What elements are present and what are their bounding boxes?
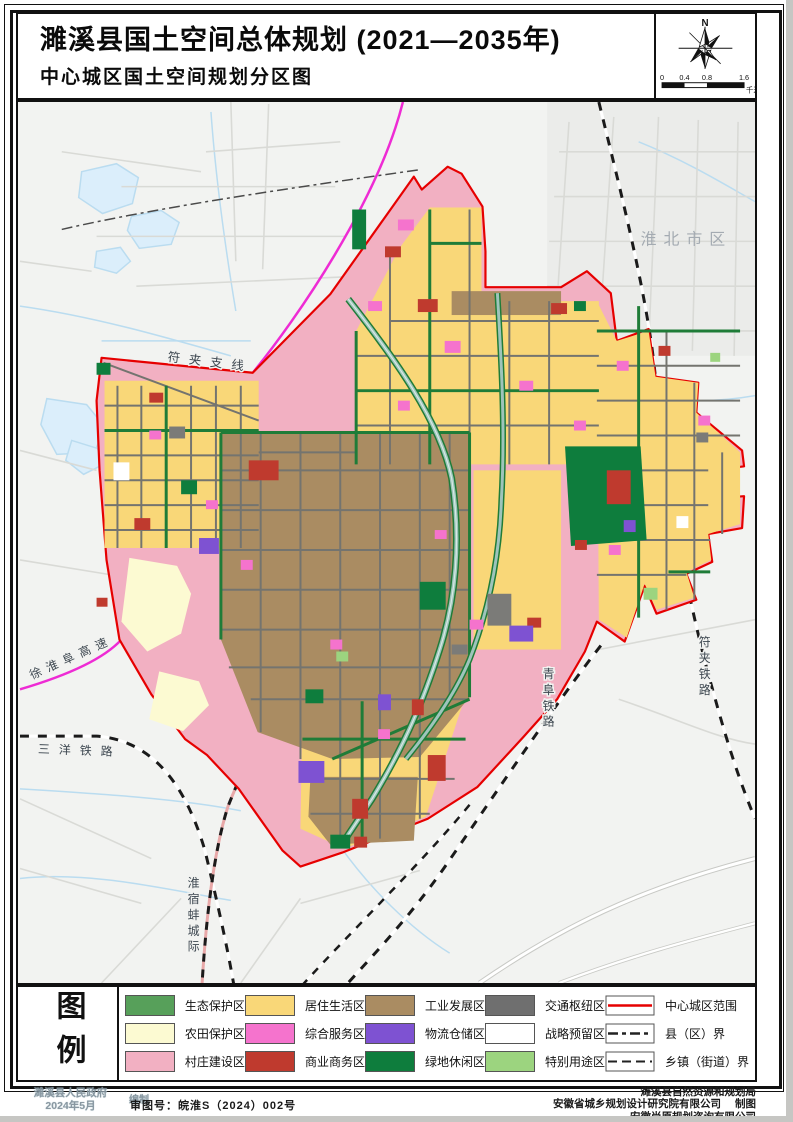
title-cell: 濉溪县国土空间总体规划 (2021—2035年) 中心城区国土空间规划分区图 xyxy=(18,14,654,98)
government-stamp: 濉溪县人民政府 2024年5月 编制 xyxy=(8,1087,133,1112)
special-swatch xyxy=(485,1051,535,1072)
legend-item-logistics: 物流仓储区 xyxy=(365,1021,485,1045)
legend-item-eco: 生态保护区 xyxy=(125,993,245,1017)
stamp-line1: 濉溪县人民政府 xyxy=(8,1087,133,1100)
legend-item-industry: 工业发展区 xyxy=(365,993,485,1017)
title-block: 濉溪县国土空间总体规划 (2021—2035年) 中心城区国土空间规划分区图 N xyxy=(16,12,757,100)
legend: 图例 生态保护区 农田保护区 村庄建设区 居住生活区 综合服务区 商业商务区 工… xyxy=(16,985,757,1082)
residential-swatch xyxy=(245,995,295,1016)
dashdot-line-symbol xyxy=(605,1023,655,1044)
farmland-swatch xyxy=(125,1023,175,1044)
stamp-line2: 2024年5月 xyxy=(8,1100,133,1113)
legend-item-village: 村庄建设区 xyxy=(125,1050,245,1074)
commercial-swatch xyxy=(245,1051,295,1072)
greenland-swatch xyxy=(365,1051,415,1072)
sanyang-railway-label: 三洋铁路 xyxy=(38,741,122,759)
page-subtitle: 中心城区国土空间规划分区图 xyxy=(40,62,644,89)
dash-line-symbol xyxy=(605,1051,655,1072)
fujia-railway-label: 符夹铁路 xyxy=(697,634,711,699)
qingfu-railway-label: 青阜铁路 xyxy=(541,667,555,731)
legend-item-residential: 居住生活区 xyxy=(245,993,365,1017)
industry-swatch xyxy=(365,995,415,1016)
logistics-swatch xyxy=(365,1023,415,1044)
legend-item-hub: 交通枢纽区 xyxy=(485,993,605,1017)
legend-item-strategic: 战略预留区 xyxy=(485,1021,605,1045)
legend-grid: 生态保护区 农田保护区 村庄建设区 居住生活区 综合服务区 商业商务区 工业发展… xyxy=(119,987,755,1080)
page-edge-bottom xyxy=(0,1116,793,1122)
compass-rose-icon: N xyxy=(658,16,753,71)
huaisubeng-intercity-label: 淮宿蚌城际 xyxy=(186,876,200,956)
legend-item-farmland: 农田保护区 xyxy=(125,1021,245,1045)
legend-item-county-border: 县（区）界 xyxy=(605,1021,749,1045)
eco-swatch xyxy=(125,995,175,1016)
page-title: 濉溪县国土空间总体规划 (2021—2035年) xyxy=(40,25,644,56)
plan-sheet: 濉溪县国土空间总体规划 (2021—2035年) 中心城区国土空间规划分区图 N xyxy=(0,0,793,1122)
approval-number: 审图号：皖淮S（2024）002号 xyxy=(130,1097,296,1113)
credit-line-1: 濉溪县自然资源和规划局 xyxy=(553,1086,756,1098)
scale-bar: 0 0.4 0.8 1.6 千米 xyxy=(656,71,755,98)
legend-item-town-border: 乡镇（街道）界 xyxy=(605,1050,749,1074)
industry-strip-north xyxy=(452,291,561,315)
svg-text:0.4: 0.4 xyxy=(679,72,689,81)
legend-item-service: 综合服务区 xyxy=(245,1021,365,1045)
credit-suffix: 制图 xyxy=(735,1098,756,1110)
legend-item-boundary: 中心城区范围 xyxy=(605,993,749,1017)
legend-item-special: 特别用途区 xyxy=(485,1050,605,1074)
village-swatch xyxy=(125,1051,175,1072)
page-edge-right xyxy=(786,0,793,1122)
huaibei-city-label: 淮北市区 xyxy=(641,230,732,248)
svg-text:千米: 千米 xyxy=(746,85,755,94)
compass-panel: N 0 0.4 0.8 1.6 xyxy=(654,14,755,98)
svg-text:0: 0 xyxy=(660,72,664,81)
hub-swatch xyxy=(485,995,535,1016)
svg-text:1.6: 1.6 xyxy=(739,72,749,81)
svg-text:0.8: 0.8 xyxy=(702,72,712,81)
credit-line-2: 安徽省城乡规划设计研究院有限公司制图 xyxy=(553,1098,756,1110)
service-swatch xyxy=(245,1023,295,1044)
legend-item-greenland: 绿地休闲区 xyxy=(365,1050,485,1074)
planning-map: 淮北市区 符夹支线 徐淮阜高速 三洋铁路 淮宿蚌城际 青阜铁路 符夹铁路 xyxy=(18,102,755,983)
legend-title: 图例 xyxy=(45,990,89,1078)
legend-item-commercial: 商业商务区 xyxy=(245,1050,365,1074)
legend-title-cell: 图例 xyxy=(18,987,119,1080)
residential-zone-center-east xyxy=(474,470,562,649)
map-panel[interactable]: 淮北市区 符夹支线 徐淮阜高速 三洋铁路 淮宿蚌城际 青阜铁路 符夹铁路 xyxy=(16,100,757,985)
red-line-symbol xyxy=(605,995,655,1016)
strategic-swatch xyxy=(485,1023,535,1044)
